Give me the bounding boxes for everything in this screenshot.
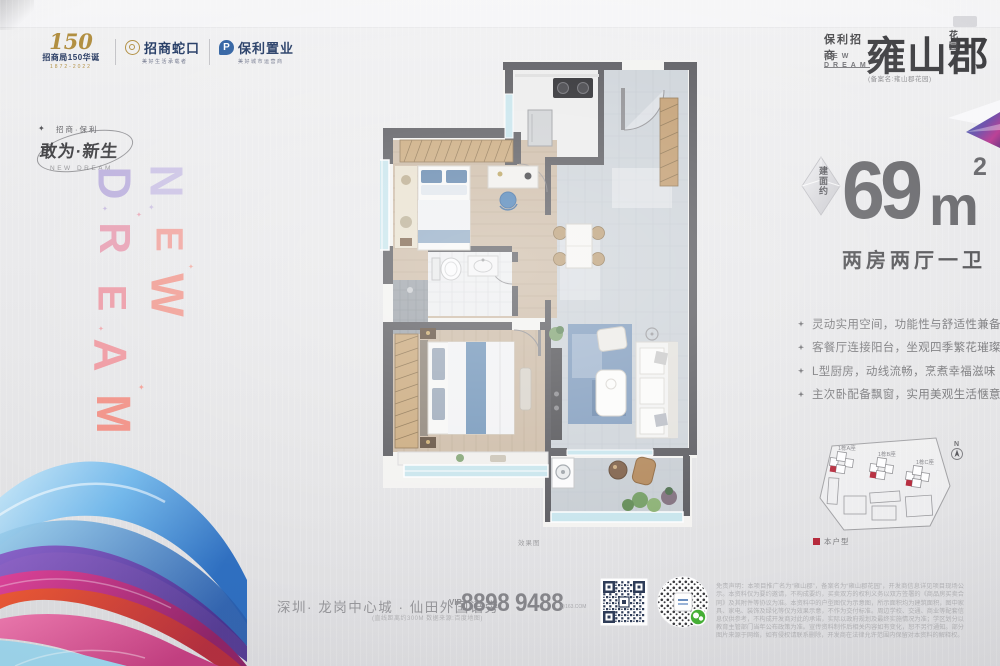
- vertical-letter-w: W: [145, 273, 191, 316]
- project-suffix: 花园: [947, 30, 960, 52]
- diamond-bullet-icon: [798, 368, 804, 374]
- poly-name: 保利置业: [238, 38, 294, 57]
- logo-divider: [115, 39, 116, 65]
- sparkle-icon: ✦: [136, 212, 142, 219]
- crystal-shard-graphic: [940, 98, 1000, 154]
- feature-text: 主次卧配备飘窗，实用美观生活惬意: [812, 386, 1000, 402]
- hotline-number: 8898 9488: [461, 589, 563, 618]
- brand-en: NEW DREAM: [824, 52, 870, 70]
- siteplan-legend: 本户型: [813, 536, 850, 547]
- diamond-bullet-icon: [798, 321, 804, 327]
- area-badge-label: 建面约: [814, 166, 828, 196]
- vertical-letter-a: A: [88, 338, 134, 371]
- brand-en-line2: DREAM: [824, 61, 870, 70]
- corner-tag: [953, 16, 977, 27]
- logo-divider: [209, 39, 210, 65]
- cmsk-tagline: 美好生活承载者: [142, 58, 200, 65]
- floorplan-caption: 效果图: [518, 537, 541, 547]
- qr-code-square: [600, 578, 648, 626]
- siteplan-map: 1栋A座 1栋B座 1栋C座 N: [810, 434, 970, 536]
- feature-item: 客餐厅连接阳台，坐观四季繁花璀璨: [798, 336, 1000, 360]
- poster-root: 150 招商局150华诞 1872-2022 招商蛇口 美好生活承载者 P 保利…: [0, 0, 1000, 666]
- feature-text: L型厨房，动线流畅，烹煮幸福滋味: [812, 363, 996, 379]
- sparkle-icon: ✦: [138, 384, 145, 392]
- ribbon-wave-graphic: [0, 428, 247, 666]
- legend-unit-swatch: [813, 538, 820, 545]
- sparkle-icon: ✦: [148, 204, 155, 212]
- slogan-main: 敢为·新生: [39, 137, 142, 162]
- floorplan: [380, 55, 705, 533]
- feature-item: L型厨房，动线流畅，烹煮幸福滋味: [798, 359, 1000, 383]
- feature-item: 主次卧配备飘窗，实用美观生活惬意: [798, 383, 1000, 407]
- logo-poly: P 保利置业 美好城市运营商: [219, 38, 294, 65]
- slogan-block: ✦ 招商·保利 敢为·新生 NEW DREAM: [40, 124, 140, 172]
- area-unit-sup: 2: [973, 153, 987, 182]
- area-unit: m: [929, 178, 979, 234]
- logo-cmg150: 150 招商局150华诞 1872-2022: [36, 33, 106, 70]
- feature-text: 灵动实用空间，功能性与舒适性兼备: [812, 316, 1000, 332]
- poly-tagline: 美好城市运营商: [238, 58, 294, 65]
- compass-n-label: N: [954, 441, 959, 448]
- feature-list: 灵动实用空间，功能性与舒适性兼备 客餐厅连接阳台，坐观四季繁花璀璨 L型厨房，动…: [798, 312, 1000, 406]
- sparkle-icon: ✦: [98, 326, 104, 333]
- cmsk-name: 招商蛇口: [144, 38, 200, 57]
- corner-shade: [0, 0, 34, 30]
- logo-cmsk: 招商蛇口 美好生活承载者: [125, 38, 200, 65]
- cmsk-ring-icon: [125, 40, 140, 55]
- hotline-suffix: @163.COM: [560, 604, 586, 610]
- sparkle-icon: ✦: [188, 264, 194, 271]
- legal-disclaimer: 免责声明：本项目推广名为“雍山郡”，备案名为“雍山郡花园”，开发商信息详见项目现…: [716, 583, 964, 640]
- vip-label: VIP: [449, 598, 462, 607]
- vertical-letter-n: N: [144, 164, 190, 197]
- vertical-letter-e2: E: [91, 285, 131, 312]
- logo-150-label: 招商局150华诞: [36, 52, 106, 63]
- logo-150-icon: 150: [36, 33, 106, 51]
- area-value: 69: [842, 150, 918, 232]
- sparkle-icon: ✦: [38, 124, 45, 133]
- logo-150-years: 1872-2022: [36, 64, 106, 70]
- siteplan-building-a-label: 1栋A座: [838, 444, 856, 452]
- header-logos: 150 招商局150华诞 1872-2022 招商蛇口 美好生活承载者 P 保利…: [36, 33, 294, 70]
- diamond-bullet-icon: [798, 344, 804, 350]
- feature-text: 客餐厅连接阳台，坐观四季繁花璀璨: [812, 339, 1000, 355]
- qr-code-round: [654, 574, 712, 632]
- project-filing-name: (备案名:雍山郡花园): [868, 73, 932, 83]
- brand-en-line1: NEW: [824, 52, 870, 61]
- feature-item: 灵动实用空间，功能性与舒适性兼备: [798, 312, 1000, 336]
- siteplan-building-b-label: 1栋B座: [878, 450, 896, 458]
- siteplan-building-c-label: 1栋C座: [916, 458, 935, 466]
- legend-unit-label: 本户型: [824, 536, 850, 547]
- vertical-letter-d: D: [92, 166, 138, 199]
- vertical-letter-e1: E: [150, 226, 188, 251]
- top-band: [0, 0, 1000, 28]
- layout-spec: 两房两厅一卫: [842, 244, 986, 273]
- sparkle-icon: ✦: [102, 206, 108, 213]
- vertical-letter-r: R: [92, 222, 136, 254]
- diamond-bullet-icon: [798, 391, 804, 397]
- poly-p-icon: P: [219, 40, 234, 55]
